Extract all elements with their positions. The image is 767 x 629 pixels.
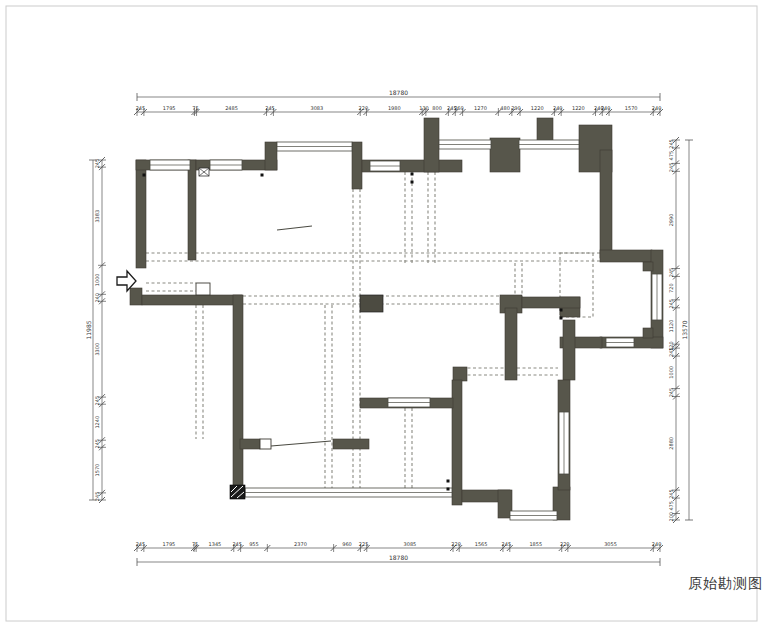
door-hinge-dot xyxy=(261,174,264,177)
dim-text: 220 xyxy=(451,541,461,547)
dim-text: 1220 xyxy=(531,105,544,111)
dim-text: 1795 xyxy=(163,541,176,547)
dim-text: 240 xyxy=(553,105,563,111)
door-hinge-dot xyxy=(447,480,450,483)
dim-text: 245 xyxy=(669,139,675,149)
dim-text: 75 xyxy=(192,105,198,111)
dim-total-text: 18780 xyxy=(389,554,408,561)
door-hinge-dot xyxy=(411,181,414,184)
door-panel-box xyxy=(196,283,210,295)
dim-text: 245 xyxy=(669,163,675,173)
dim-text: 2880 xyxy=(669,437,675,450)
drawing-title: 原始勘测图 xyxy=(688,575,763,593)
dim-total-text: 13570 xyxy=(681,320,688,339)
dim-text: 1855 xyxy=(529,541,542,547)
wall-segment xyxy=(505,308,517,380)
dim-text: 245 xyxy=(669,347,675,357)
dim-text: 220 xyxy=(560,541,570,547)
dim-text: 245 xyxy=(669,388,675,398)
dim-text: 3055 xyxy=(604,541,617,547)
dim-text: 3083 xyxy=(310,105,323,111)
dim-text: 245 xyxy=(95,439,101,449)
wall-segment xyxy=(424,118,439,172)
dim-text: 1980 xyxy=(388,105,401,111)
dim-text: 240 xyxy=(95,293,101,303)
dim-text: 960 xyxy=(342,541,352,547)
wall-segment xyxy=(643,262,653,271)
dim-text: 1120 xyxy=(669,320,675,333)
dim-text: 475 xyxy=(669,151,675,161)
dim-text: 260 xyxy=(454,105,464,111)
wall-segment xyxy=(333,439,369,449)
wall-segment xyxy=(522,297,580,308)
dim-text: 3085 xyxy=(404,541,417,547)
wall-segment xyxy=(352,142,362,189)
dim-text: 240 xyxy=(601,105,611,111)
dim-text: 1000 xyxy=(669,366,675,379)
dim-text: 1270 xyxy=(474,105,487,111)
dim-text: 955 xyxy=(249,541,259,547)
dim-text: 3300 xyxy=(95,343,101,356)
dim-text: 245 xyxy=(265,105,275,111)
dim-text: 720 xyxy=(669,283,675,293)
dim-text: 480 xyxy=(500,105,510,111)
wall-segment xyxy=(452,380,462,505)
dim-text: 1240 xyxy=(95,416,101,429)
dim-text: 1000 xyxy=(95,273,101,286)
dim-text: 245 xyxy=(502,541,512,547)
dim-text: 2990 xyxy=(669,214,675,227)
dim-text: 1345 xyxy=(209,541,222,547)
dim-text: 245 xyxy=(136,541,146,547)
dim-text: 245 xyxy=(669,299,675,309)
wall-segment xyxy=(453,367,467,381)
page-frame xyxy=(6,6,757,621)
wall-segment xyxy=(490,138,520,172)
dim-text: 1220 xyxy=(572,105,585,111)
wall-segment xyxy=(265,142,277,170)
dim-text: 1565 xyxy=(475,541,488,547)
dim-text: 245 xyxy=(669,489,675,499)
dim-text: 75 xyxy=(192,541,198,547)
door-leaf xyxy=(271,441,331,446)
wall-segment xyxy=(643,328,653,338)
door-hinge-dot xyxy=(143,174,146,177)
dim-text: 245 xyxy=(136,105,146,111)
door-hinge-dot xyxy=(447,488,450,491)
wall-segment xyxy=(600,250,652,262)
wall-segment xyxy=(130,288,142,305)
dim-text: 290 xyxy=(511,105,521,111)
door-panel-box xyxy=(260,439,271,449)
wall-segment xyxy=(142,295,242,305)
dim-total-text: 11985 xyxy=(85,320,92,339)
hatched-column xyxy=(230,485,245,499)
dim-text: 1570 xyxy=(625,105,638,111)
column xyxy=(360,295,383,312)
door-hinge-dot xyxy=(411,173,414,176)
wall-segment xyxy=(563,320,575,380)
dim-text: 2370 xyxy=(294,541,307,547)
dim-text: 240 xyxy=(652,541,662,547)
door-hinge-dot xyxy=(560,317,563,320)
wall-segment xyxy=(188,160,196,260)
dim-text: 2485 xyxy=(225,105,238,111)
dim-total-text: 18780 xyxy=(389,89,408,96)
dim-text: 130 xyxy=(419,105,429,111)
wall-segment xyxy=(240,439,260,449)
dim-text: 3383 xyxy=(95,210,101,223)
dim-text: 245 xyxy=(669,268,675,278)
dim-text: 475 xyxy=(669,501,675,511)
wall-segment xyxy=(233,295,243,491)
dim-text: 800 xyxy=(432,105,442,111)
door-hinge-dot xyxy=(560,309,563,312)
dim-text: 225 xyxy=(359,541,369,547)
dim-text: 245 xyxy=(95,396,101,406)
dim-text: 1795 xyxy=(163,105,176,111)
dim-text: 220 xyxy=(359,105,369,111)
dim-text: 245 xyxy=(232,541,242,547)
dim-text: 1570 xyxy=(95,464,101,477)
door-leaf xyxy=(277,226,312,230)
wall-segment xyxy=(600,150,612,258)
dim-text: 240 xyxy=(652,105,662,111)
floor-plan-canvas: 2451795752485245308322019801308002452601… xyxy=(0,0,767,629)
dim-text: 200 xyxy=(669,512,675,522)
